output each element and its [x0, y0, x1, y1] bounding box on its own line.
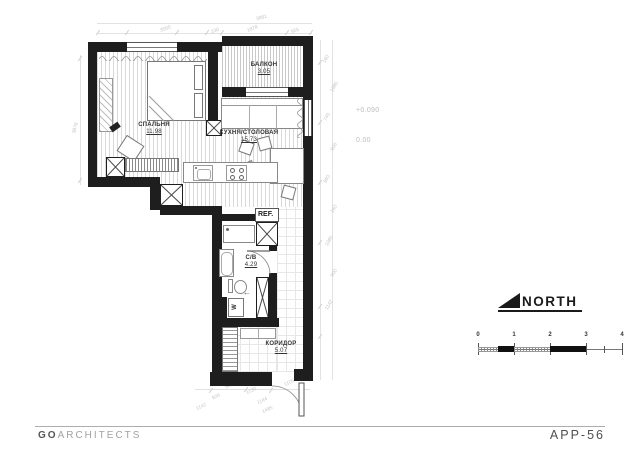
scale-solid-segment — [550, 346, 586, 352]
north-arrow: NORTH — [498, 293, 582, 312]
dim-label: 920 — [211, 393, 221, 402]
north-label: NORTH — [522, 295, 578, 309]
bedroom-area: 11.98 — [138, 129, 170, 136]
dim-label: 906 — [329, 142, 338, 152]
dim-label: 1142 — [324, 299, 335, 311]
kitchen-label: КУХНЯ/СТОЛОВАЯ 15.73 — [220, 130, 278, 144]
bathroom-name: С/В — [246, 255, 257, 261]
scale-hatch-segment — [478, 347, 498, 352]
stove-burner — [239, 168, 244, 173]
kitchen-area: 15.73 — [220, 137, 278, 144]
bedroom-name: СПАЛЬНЯ — [138, 122, 170, 128]
window-glass-line — [308, 100, 309, 136]
sink-basin — [197, 169, 211, 180]
dim-label: 1142 — [195, 402, 207, 412]
dim-label: 1144 — [256, 396, 268, 406]
sofa — [221, 98, 303, 129]
corridor-closet — [222, 327, 238, 372]
scale-tick-label: 4 — [620, 332, 623, 338]
stove-burner — [230, 168, 235, 173]
wardrobe — [99, 78, 113, 132]
scale-mid-tick — [604, 346, 605, 353]
radiator-bench — [125, 158, 179, 172]
title-rule — [35, 426, 605, 427]
sofa-cushion-line — [249, 105, 250, 129]
wall-bathroom-top — [222, 214, 255, 221]
entry-door-arc — [272, 386, 302, 416]
window-glass-line — [246, 92, 288, 93]
scale-hatch-segment — [514, 347, 550, 352]
wall-bedroom-kitchen-divider — [208, 52, 218, 122]
kitchen-name: КУХНЯ/СТОЛОВАЯ — [220, 130, 278, 136]
wall-bathroom-bottom — [217, 318, 279, 327]
wall-balcony-bottom-1 — [222, 87, 246, 97]
kitchen-window — [304, 100, 312, 136]
wall-right — [303, 36, 313, 381]
studio-logo-bold: GO — [38, 430, 58, 441]
wall-balcony-top — [222, 36, 312, 46]
scale-tick — [622, 343, 623, 355]
dim-label: 160 — [321, 54, 330, 64]
shaft-xbox-step — [160, 184, 183, 206]
window-glass-line — [127, 47, 177, 48]
bathroom-area: 4.29 — [245, 262, 257, 269]
level-mark-floor: +0.090 — [356, 107, 379, 114]
scale-tick-label: 2 — [548, 332, 551, 338]
scale-tick-label: 0 — [476, 332, 479, 338]
balcony-door — [246, 87, 288, 97]
kitchen-sink — [193, 165, 213, 181]
wall-entry-corner — [294, 369, 313, 381]
bathroom-label: С/В 4.29 — [245, 255, 257, 269]
scale-solid-segment — [498, 346, 514, 352]
washer-label: W — [232, 304, 238, 310]
pillow — [194, 93, 203, 118]
sofa-backrest-line — [222, 105, 302, 106]
shaft-xbox-bathroom — [256, 277, 269, 318]
bedroom-window — [127, 42, 177, 52]
scale-tick-label: 3 — [584, 332, 587, 338]
stove — [226, 165, 247, 181]
shelf-divider — [258, 329, 259, 338]
corridor-shelf — [240, 328, 276, 339]
faucet-dot — [226, 228, 229, 231]
stove-burner — [239, 175, 244, 180]
scale-tick — [586, 343, 587, 355]
wall-corridor-left — [212, 214, 222, 373]
dim-line-top-total — [97, 23, 312, 24]
studio-logo: GOARCHITECTS — [38, 430, 141, 441]
wall-step — [150, 183, 160, 210]
balcony-area: 3.05 — [251, 69, 278, 76]
corridor-label: КОРИДОР 5.07 — [266, 341, 297, 355]
sink-faucet — [195, 167, 197, 169]
wall-bedroom-top-1 — [88, 42, 127, 52]
balcony-name: БАЛКОН — [251, 62, 278, 68]
scale-bar: 0 1 2 3 4 — [474, 332, 626, 360]
fridge-label: REF. — [258, 211, 273, 218]
dim-label: 745 — [322, 112, 331, 122]
wall-washer-stub — [222, 297, 227, 318]
dim-label: 160 — [329, 204, 338, 214]
shower-basin — [223, 225, 255, 243]
wall-bedroom-left — [88, 42, 97, 187]
dim-label: 1485 — [261, 405, 274, 415]
dim-line-right-1 — [320, 40, 321, 380]
bathtub — [219, 249, 234, 277]
corridor-area: 5.07 — [266, 348, 297, 355]
bathtub-inner — [221, 252, 233, 276]
stove-burner — [230, 175, 235, 180]
toilet-tank — [228, 279, 233, 293]
wall-entry-bottom — [210, 372, 272, 386]
level-mark-entry: 0.00 — [356, 137, 371, 144]
pillow — [194, 65, 203, 90]
toilet-arrow-icon: ← — [243, 289, 251, 297]
corridor-name: КОРИДОР — [266, 341, 297, 347]
wall-bathroom-right-bottom — [269, 273, 277, 320]
sofa-cushion-line — [276, 105, 277, 129]
bedroom-label: СПАЛЬНЯ 11.98 — [138, 122, 170, 136]
studio-logo-light: ARCHITECTS — [58, 430, 142, 441]
shaft-xbox-bedroom — [106, 157, 125, 177]
dim-label: 1985 — [329, 81, 340, 94]
dim-label: 1985 — [324, 235, 335, 248]
balcony-label: БАЛКОН 3.05 — [251, 62, 278, 76]
dim-line-left — [80, 55, 81, 185]
dim-label: 3881 — [255, 14, 267, 23]
scale-tick-label: 1 — [512, 332, 515, 338]
sheet-code: APP-56 — [550, 428, 605, 442]
dim-label: 893 — [322, 174, 331, 184]
north-triangle-icon — [498, 293, 520, 308]
wall-balcony-bottom-2 — [288, 87, 303, 97]
fridge-xbox — [256, 222, 278, 246]
dim-tick — [309, 30, 313, 35]
floorplan-sheet: 3000 230 1878 955 3881 3878 160 1985 745… — [0, 0, 640, 453]
wall-bedroom-top-2 — [177, 42, 222, 52]
dim-label: 3878 — [71, 122, 80, 134]
dim-label: 900 — [329, 268, 338, 278]
